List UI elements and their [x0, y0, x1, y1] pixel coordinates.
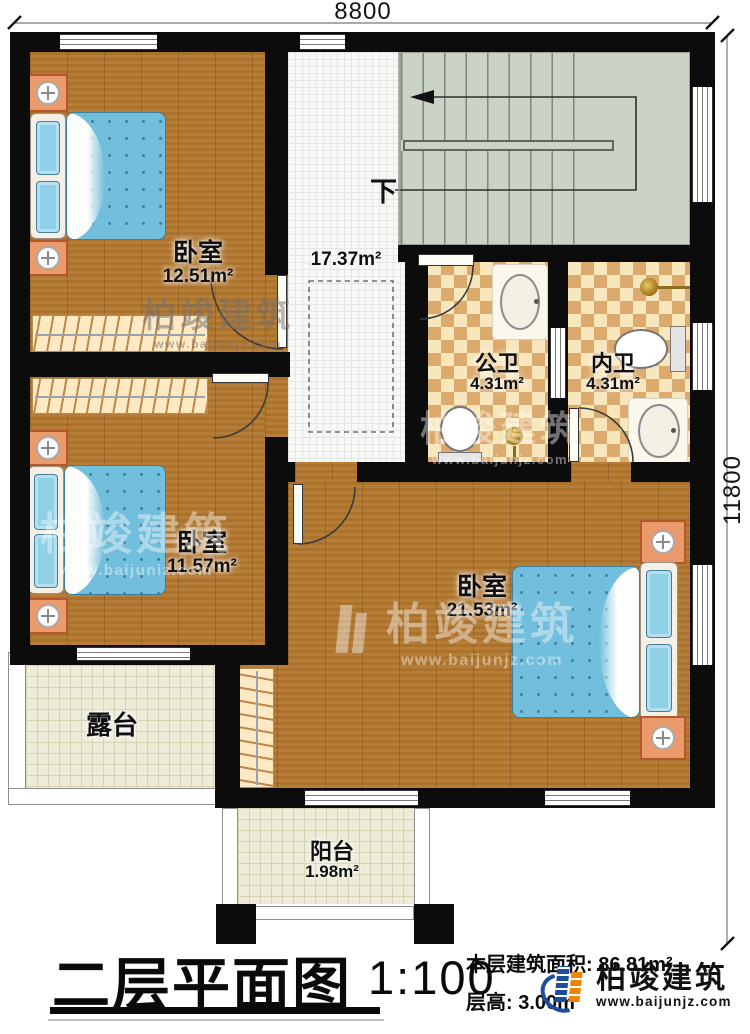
window-top-hall [300, 34, 345, 50]
wall-hall-west-lower [265, 437, 288, 665]
room-label-public-bath: 公卫 4.31m² [470, 352, 524, 393]
sink-faucet-icon [671, 428, 676, 433]
window-right-ensuite [692, 323, 713, 390]
dimension-tick-icon [706, 16, 719, 29]
room-name: 卧室 [447, 574, 518, 601]
brand-logo: 柏竣建筑 www.baijunjz.com [540, 964, 732, 1018]
doorway-bedroom3 [295, 462, 357, 482]
room-label-hall: 17.37m² [311, 250, 382, 270]
room-name: 露台 [86, 712, 138, 740]
door-leaf-bedroom1 [277, 275, 287, 348]
door-leaf-bedroom3 [293, 484, 303, 544]
sink-faucet-icon [534, 299, 539, 304]
room-area: 1.98m² [305, 863, 359, 881]
stair-flight-lower [401, 151, 591, 246]
brand-text: 柏竣建筑 www.baijunjz.com [596, 964, 732, 1009]
window-bottom-bedroom3 [545, 790, 630, 806]
lamp-icon [36, 246, 60, 270]
sliding-door-balcony [305, 790, 418, 806]
wall-left [10, 32, 30, 655]
floor-plan: 卧室 12.51m² 卧室 11.57m² 卧室 21.53m² 17.37m²… [0, 0, 750, 1034]
dimension-tick-icon [721, 937, 734, 950]
wardrobe-bedroom2 [32, 378, 208, 414]
doorway-bedroom2 [265, 377, 288, 437]
nightstand [640, 716, 686, 760]
room-name: 阳台 [305, 840, 359, 863]
sliding-door-terrace [77, 647, 190, 661]
lamp-icon [36, 436, 60, 460]
shower-head-icon [505, 427, 523, 445]
toilet-tank [670, 326, 686, 372]
bed-sheet [67, 113, 105, 240]
window-bath-divider [550, 328, 566, 398]
brand-building-icon [540, 964, 592, 1018]
lamp-icon [651, 530, 675, 554]
room-label-ensuite-bath: 内卫 4.31m² [586, 352, 640, 393]
door-leaf-bedroom2 [212, 373, 269, 383]
door-leaf-ensuite-bath [569, 408, 579, 462]
room-name: 内卫 [586, 352, 640, 375]
stair-flight-upper [401, 53, 591, 140]
wardrobe-bedroom1 [32, 315, 208, 352]
pillow [646, 570, 672, 638]
pillow [34, 474, 58, 530]
terrace-parapet-bottom [8, 788, 217, 805]
terrace-parapet-left [8, 652, 26, 805]
dimension-top-value: 8800 [334, 0, 391, 26]
balcony-parapet-left [222, 808, 238, 908]
bed-mattress [64, 465, 166, 595]
dimension-tick-icon [721, 29, 734, 42]
brand-site: www.baijunjz.com [596, 994, 732, 1009]
title-underline-thin [48, 1019, 384, 1021]
closet-bedroom3 [238, 668, 274, 788]
room-area: 21.53m² [447, 601, 518, 621]
window-right-stairs [692, 87, 713, 202]
room-area: 11.57m² [167, 557, 237, 577]
nightstand [640, 520, 686, 564]
doorway-ensuite-bath [571, 462, 631, 482]
bed-sheet [599, 567, 639, 718]
wall-hall-west-upper [265, 52, 288, 275]
toilet-bowl [440, 406, 480, 452]
room-label-bedroom2: 卧室 11.57m² [167, 530, 237, 577]
wall-terrace-east [215, 645, 240, 808]
bed-sheet [65, 466, 105, 595]
balcony-parapet-bottom [252, 906, 414, 920]
pillow [34, 534, 58, 588]
room-name: 公卫 [470, 352, 524, 375]
staircase [400, 52, 690, 245]
pillow [36, 181, 60, 233]
window-top-bedroom1 [60, 34, 157, 50]
nightstand [28, 74, 68, 112]
shower-head-icon [640, 278, 658, 296]
title-underline [50, 1007, 380, 1014]
room-name: 卧室 [163, 240, 234, 267]
room-label-bedroom1: 卧室 12.51m² [163, 240, 234, 287]
balcony-parapet-right [414, 808, 430, 908]
dimension-right-value: 11800 [719, 455, 747, 525]
lamp-icon [651, 726, 675, 750]
room-area: 4.31m² [470, 375, 524, 393]
brand-name: 柏竣建筑 [596, 964, 732, 994]
stairs-down-label: 下 [370, 170, 397, 209]
window-right-bedroom3 [692, 565, 713, 665]
wall-bottom [215, 788, 715, 808]
nightstand [28, 240, 68, 276]
room-label-terrace: 露台 [86, 712, 138, 740]
bed-mattress [512, 566, 640, 718]
room-name: 卧室 [167, 530, 237, 557]
dimension-tick-icon [8, 16, 21, 29]
nightstand [28, 598, 68, 634]
lamp-icon [36, 81, 60, 105]
room-area: 17.37m² [311, 250, 382, 270]
stair-handrail [403, 140, 614, 151]
balcony-post-right [414, 904, 454, 944]
door-leaf-public-bath [418, 254, 474, 266]
lamp-icon [36, 604, 60, 628]
room-label-balcony: 阳台 1.98m² [305, 840, 359, 881]
room-area: 4.31m² [586, 375, 640, 393]
bed-mattress [66, 112, 166, 240]
pillow [36, 121, 60, 175]
toilet [438, 406, 482, 468]
wall-publicbath-west [405, 262, 428, 462]
room-area: 12.51m² [163, 267, 234, 287]
pillow [646, 644, 672, 712]
room-label-bedroom3: 卧室 21.53m² [447, 574, 518, 621]
shower-stem [658, 286, 690, 289]
nightstand [28, 430, 68, 466]
